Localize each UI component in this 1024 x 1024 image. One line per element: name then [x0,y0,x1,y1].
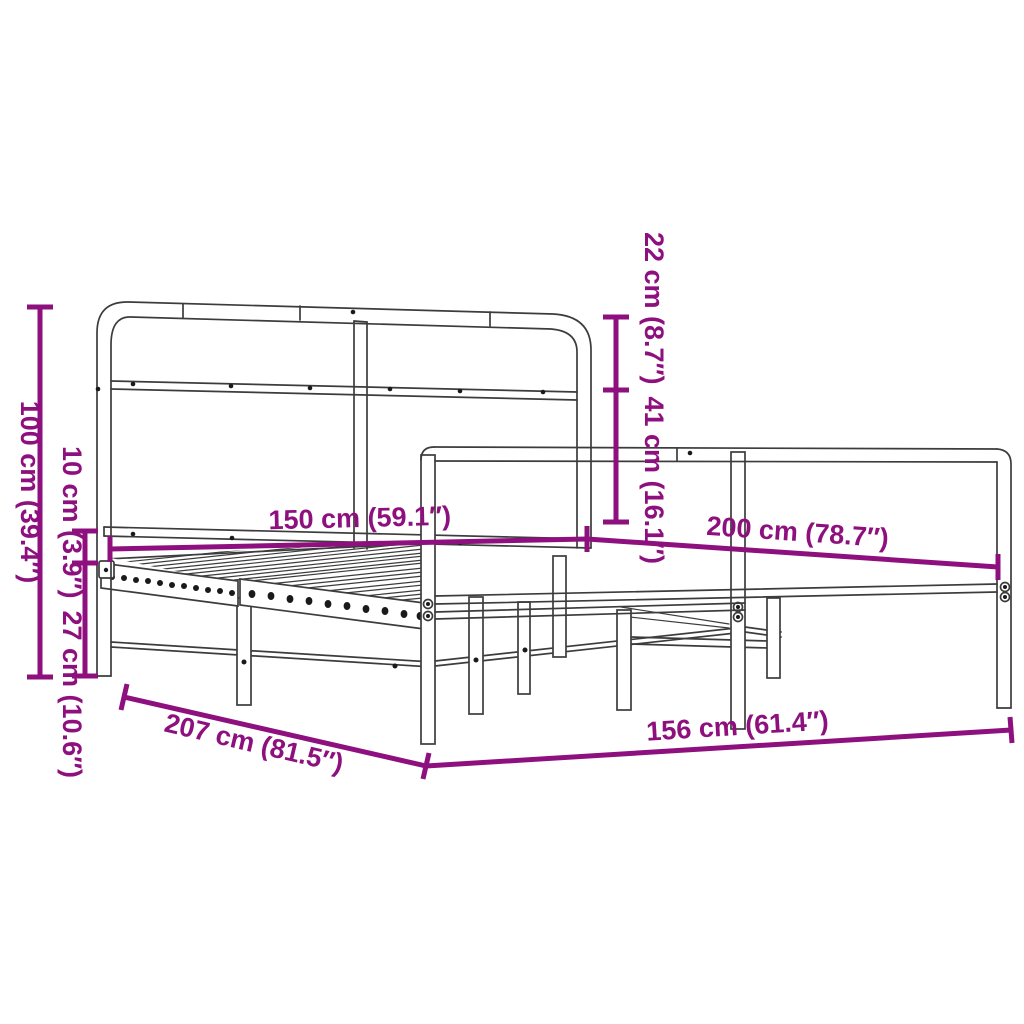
leg-center [617,610,631,710]
footboard-middle-post [731,452,745,729]
dim-label-headboard-top-to-rail: 22 cm (8.7″) [639,232,669,385]
leg-front-center [469,597,483,714]
dim-label-headboard-above-base: 41 cm (16.1″) [639,396,669,564]
product-dimension-diagram: 100 cm (39.4″) 10 cm (3.9″)27 cm (10.6″)… [0,0,1024,1024]
dim-label-headboard-heights: 22 cm (8.7″)41 cm (16.1″) [639,232,669,564]
dim-label-rail-clearance: 10 cm (3.9″)27 cm (10.6″) [57,446,87,778]
bed-frame-diagram-svg: 100 cm (39.4″) 10 cm (3.9″)27 cm (10.6″)… [0,0,1024,1024]
side-rails [99,561,432,630]
dim-label-side-rail-height: 10 cm (3.9″) [57,446,87,599]
leg-far-rear [553,556,566,657]
headboard [96,302,591,676]
under-bed-braces [111,607,781,667]
dim-label-inner-width: 150 cm (59.1″) [268,501,451,535]
dim-label-total-height: 100 cm (39.4″) [15,401,45,584]
dim-rail-and-clearance: 10 cm (3.9″)27 cm (10.6″) [57,446,98,778]
bed-legs [237,556,780,714]
dim-label-outer-length: 207 cm (81.5″) [162,708,347,779]
dim-total-height: 100 cm (39.4″) [15,307,53,677]
leg-far-right [767,598,780,678]
dim-headboard-heights: 22 cm (8.7″)41 cm (16.1″) [603,232,669,564]
leg-front-left [237,598,251,705]
dim-outer-width: 156 cm (61.4″) [426,705,1012,766]
dim-outer-length: 207 cm (81.5″) [121,684,429,779]
dim-label-under-bed-clearance: 27 cm (10.6″) [57,610,87,778]
